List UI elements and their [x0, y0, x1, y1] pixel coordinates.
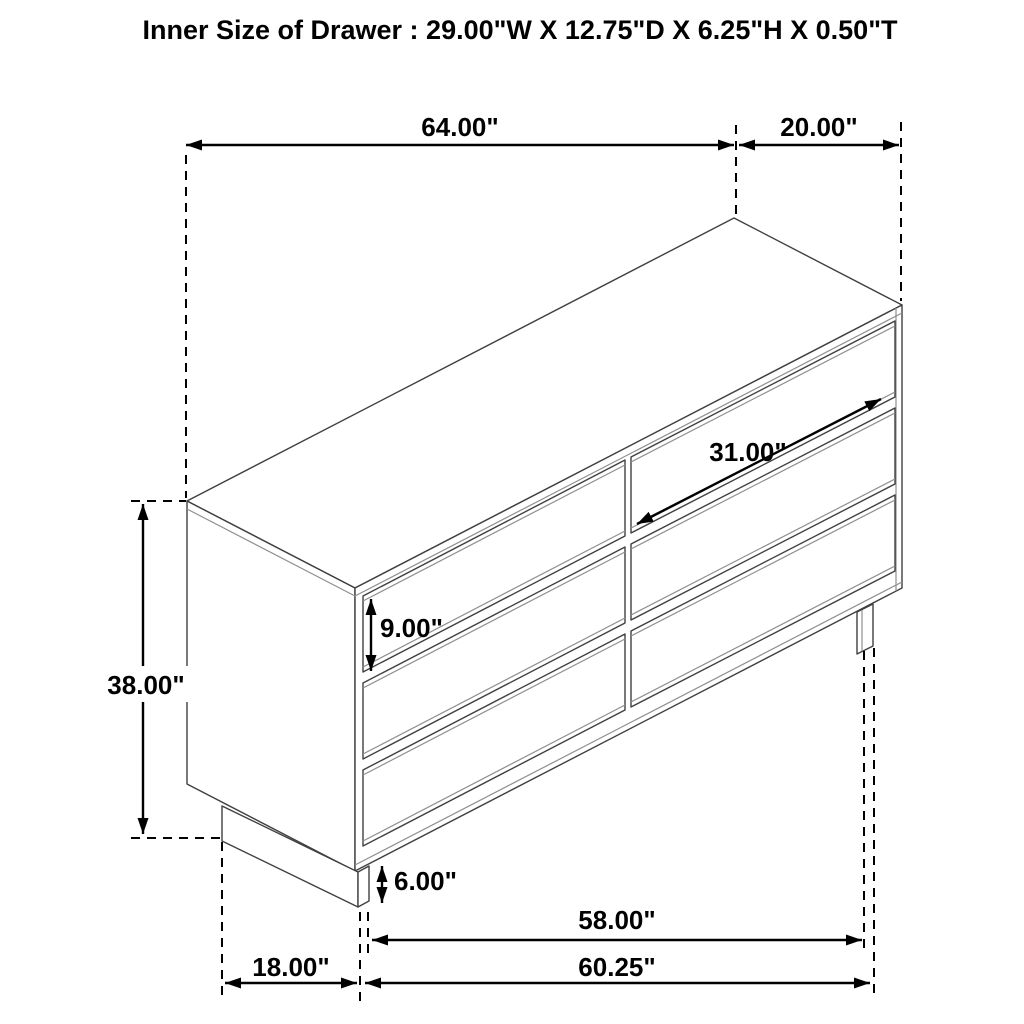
- dim-base-height-label: 6.00": [394, 866, 457, 896]
- dim-overall-depth-label: 20.00": [780, 112, 857, 142]
- dim-base-depth-label: 18.00": [252, 952, 329, 982]
- rear-leg: [857, 604, 873, 654]
- dim-leg-spacing-label: 58.00": [578, 905, 655, 935]
- dim-overall-height-label: 38.00": [107, 670, 184, 700]
- diagram-title: Inner Size of Drawer : 29.00"W X 12.75"D…: [142, 15, 898, 45]
- dimension-diagram: Inner Size of Drawer : 29.00"W X 12.75"D…: [0, 0, 1024, 1024]
- dresser-outline: [187, 218, 902, 907]
- dim-drawer-width-label: 31.00": [709, 437, 786, 467]
- dim-overall-width-label: 64.00": [421, 112, 498, 142]
- dresser-dimension-drawing: Inner Size of Drawer : 29.00"W X 12.75"D…: [0, 0, 1024, 1024]
- dim-drawer-height-label: 9.00": [380, 613, 443, 643]
- base-plinth-corner: [358, 866, 369, 907]
- dim-base-width-label: 60.25": [578, 952, 655, 982]
